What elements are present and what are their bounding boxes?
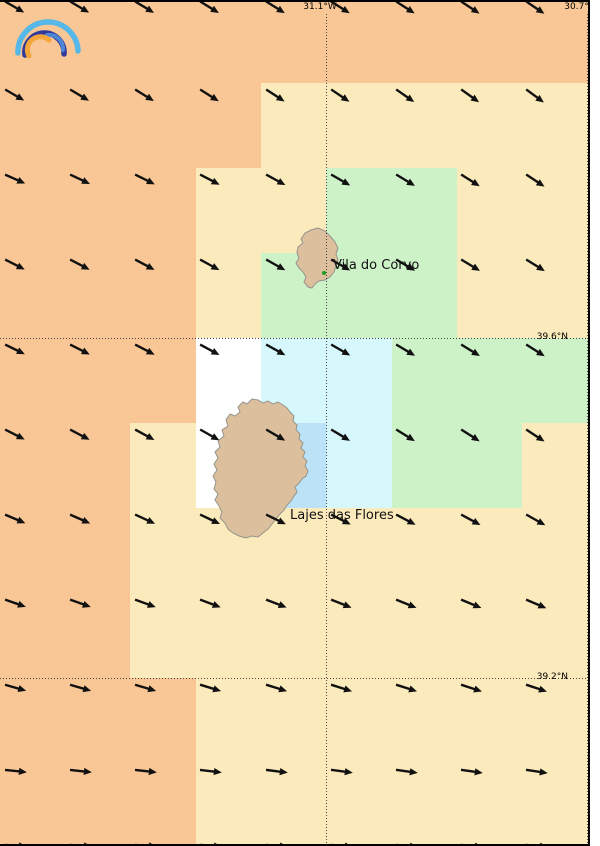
- wind-arrow-icon: [68, 168, 96, 184]
- wind-arrow-icon: [198, 168, 226, 184]
- wind-arrow-icon: [198, 253, 226, 269]
- wind-arrow-icon: [68, 508, 96, 524]
- wind-arrow-icon: [524, 253, 552, 269]
- wind-arrow-icon: [394, 763, 422, 779]
- wind-arrow-icon: [133, 253, 161, 269]
- wind-arrow-icon: [264, 168, 292, 184]
- wind-arrow-icon: [329, 338, 357, 354]
- wind-arrow-icon: [394, 83, 422, 99]
- wind-arrow-icon: [524, 593, 552, 609]
- wind-arrow-icon: [394, 423, 422, 439]
- wind-arrow-icon: [133, 83, 161, 99]
- wind-arrows-layer: [0, 0, 590, 846]
- wind-arrow-icon: [459, 423, 487, 439]
- wind-arrow-icon: [3, 678, 31, 694]
- wind-arrow-icon: [3, 83, 31, 99]
- wind-arrow-icon: [264, 763, 292, 779]
- wind-arrow-icon: [264, 423, 292, 439]
- wind-arrow-icon: [198, 508, 226, 524]
- wind-arrow-icon: [524, 508, 552, 524]
- wind-arrow-icon: [459, 83, 487, 99]
- wind-arrow-icon: [394, 253, 422, 269]
- wind-arrow-icon: [459, 168, 487, 184]
- wind-arrow-icon: [264, 593, 292, 609]
- wind-arrow-icon: [264, 338, 292, 354]
- wind-arrow-icon: [459, 508, 487, 524]
- wind-arrow-icon: [459, 593, 487, 609]
- wind-arrow-icon: [133, 763, 161, 779]
- wind-arrow-icon: [264, 253, 292, 269]
- wind-arrow-icon: [264, 678, 292, 694]
- wind-arrow-icon: [524, 168, 552, 184]
- wind-arrow-icon: [264, 508, 292, 524]
- map-canvas: 31.1°W30.7°W39.6°N39.2°N Vila do CorvoLa…: [0, 0, 590, 846]
- wind-arrow-icon: [68, 593, 96, 609]
- wind-arrow-icon: [524, 338, 552, 354]
- wind-arrow-icon: [394, 593, 422, 609]
- wind-arrow-icon: [133, 423, 161, 439]
- wind-arrow-icon: [68, 338, 96, 354]
- wind-arrow-icon: [133, 678, 161, 694]
- wind-arrow-icon: [459, 678, 487, 694]
- wind-arrow-icon: [198, 593, 226, 609]
- wind-arrow-icon: [68, 253, 96, 269]
- wind-arrow-icon: [524, 763, 552, 779]
- wind-arrow-icon: [329, 593, 357, 609]
- wind-arrow-icon: [329, 508, 357, 524]
- wind-arrow-icon: [394, 508, 422, 524]
- wind-arrow-icon: [459, 763, 487, 779]
- wind-arrow-icon: [3, 423, 31, 439]
- wind-arrow-icon: [3, 168, 31, 184]
- wind-arrow-icon: [198, 678, 226, 694]
- wind-arrow-icon: [3, 253, 31, 269]
- wind-arrow-icon: [524, 83, 552, 99]
- wind-arrow-icon: [198, 83, 226, 99]
- wind-arrow-icon: [68, 763, 96, 779]
- wind-arrow-icon: [329, 423, 357, 439]
- wind-arrow-icon: [459, 338, 487, 354]
- wind-arrow-icon: [133, 593, 161, 609]
- wind-arrow-icon: [394, 338, 422, 354]
- wind-arrow-icon: [3, 593, 31, 609]
- wind-arrow-icon: [198, 763, 226, 779]
- weather-map-screenshot: 31.1°W30.7°W39.6°N39.2°N Vila do CorvoLa…: [0, 0, 600, 846]
- wind-arrow-icon: [198, 423, 226, 439]
- wind-arrow-icon: [329, 678, 357, 694]
- wind-arrow-icon: [524, 678, 552, 694]
- wind-arrow-icon: [329, 763, 357, 779]
- wind-arrow-icon: [68, 83, 96, 99]
- wind-arrow-icon: [3, 763, 31, 779]
- map-border-right: [588, 0, 590, 846]
- wind-arrow-icon: [198, 338, 226, 354]
- wind-arrow-icon: [394, 168, 422, 184]
- wind-arrow-icon: [524, 423, 552, 439]
- wind-arrow-icon: [329, 168, 357, 184]
- wind-arrow-icon: [68, 423, 96, 439]
- wind-arrow-icon: [133, 508, 161, 524]
- wind-arrow-icon: [394, 678, 422, 694]
- wind-arrow-icon: [133, 168, 161, 184]
- map-border-top: [0, 0, 590, 2]
- wind-arrow-icon: [133, 338, 161, 354]
- wind-arrow-icon: [329, 83, 357, 99]
- open-meteo-rainbow-logo: [12, 14, 86, 60]
- wind-arrow-icon: [264, 83, 292, 99]
- wind-arrow-icon: [68, 678, 96, 694]
- wind-arrow-icon: [459, 253, 487, 269]
- wind-arrow-icon: [329, 253, 357, 269]
- wind-arrow-icon: [3, 508, 31, 524]
- wind-arrow-icon: [3, 338, 31, 354]
